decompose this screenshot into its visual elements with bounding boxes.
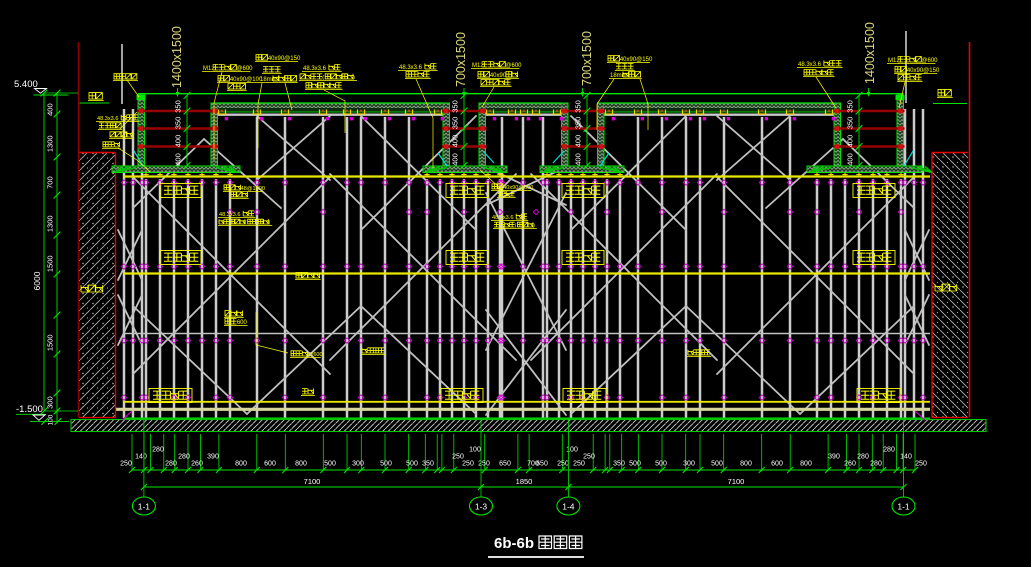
- svg-text:400: 400: [846, 135, 855, 148]
- svg-text:250: 250: [573, 461, 585, 468]
- svg-text:650: 650: [499, 461, 511, 468]
- svg-text:250: 250: [915, 461, 927, 468]
- svg-text:140: 140: [135, 454, 147, 461]
- svg-text:280: 280: [870, 461, 882, 468]
- svg-text:280: 280: [152, 447, 164, 454]
- svg-text:250: 250: [120, 461, 132, 468]
- svg-text:400: 400: [174, 135, 183, 148]
- svg-text:350: 350: [574, 117, 583, 130]
- svg-text:650: 650: [536, 461, 548, 468]
- svg-text:40x90: 40x90: [490, 73, 507, 79]
- svg-text:800: 800: [800, 461, 812, 468]
- svg-text:400: 400: [846, 153, 855, 166]
- svg-text:600: 600: [264, 461, 276, 468]
- svg-text:40x90@150: 40x90@150: [268, 56, 301, 62]
- svg-text:48@1500: 48@1500: [241, 186, 265, 192]
- svg-text:400: 400: [174, 153, 183, 166]
- svg-text:6000: 6000: [32, 271, 42, 290]
- svg-text:1300: 1300: [46, 135, 55, 152]
- svg-text:250: 250: [583, 454, 595, 461]
- svg-text:1400x1500: 1400x1500: [863, 22, 877, 84]
- svg-text:): ): [353, 75, 355, 81]
- svg-text:280: 280: [857, 454, 869, 461]
- svg-text:250: 250: [462, 461, 474, 468]
- svg-text:(: (: [245, 220, 247, 226]
- svg-text:280: 280: [178, 454, 190, 461]
- svg-text:18mm: 18mm: [260, 77, 277, 83]
- svg-text:600: 600: [771, 461, 783, 468]
- svg-text:48.3x3.6: 48.3x3.6: [399, 65, 423, 71]
- svg-text:300: 300: [46, 396, 55, 409]
- svg-text:350: 350: [174, 100, 183, 113]
- svg-text:700x1500: 700x1500: [580, 31, 594, 86]
- svg-text:@600: @600: [921, 58, 938, 64]
- svg-text:48.3x3.6: 48.3x3.6: [798, 62, 822, 68]
- svg-text:700: 700: [46, 176, 55, 189]
- svg-text:-1.500: -1.500: [16, 404, 43, 415]
- svg-text:140: 140: [900, 454, 912, 461]
- svg-text:48.3x3.6: 48.3x3.6: [219, 212, 240, 218]
- svg-text:@600: @600: [505, 63, 522, 69]
- svg-text:@600: @600: [308, 352, 323, 358]
- svg-text:1-3: 1-3: [475, 501, 488, 511]
- svg-text:400: 400: [574, 153, 583, 166]
- svg-text:350: 350: [174, 117, 183, 130]
- svg-text:300: 300: [352, 461, 364, 468]
- svg-text:7100: 7100: [304, 477, 321, 486]
- svg-text:350: 350: [613, 461, 625, 468]
- svg-text:1300: 1300: [46, 215, 55, 232]
- svg-text:@600: @600: [236, 66, 253, 72]
- svg-text:): ): [533, 223, 535, 229]
- svg-text:48.3x3.6: 48.3x3.6: [303, 66, 327, 72]
- svg-text:500: 500: [380, 461, 392, 468]
- svg-text:500: 500: [655, 461, 667, 468]
- svg-text:100: 100: [469, 447, 481, 454]
- svg-text:400: 400: [451, 135, 460, 148]
- svg-text:700x1500: 700x1500: [454, 32, 468, 87]
- svg-text:500: 500: [324, 461, 336, 468]
- svg-text:600: 600: [237, 320, 248, 326]
- svg-text:100: 100: [48, 414, 55, 425]
- svg-text:250: 250: [452, 454, 464, 461]
- svg-text:280: 280: [165, 461, 177, 468]
- svg-text:400: 400: [451, 153, 460, 166]
- svg-text:40x90@100: 40x90@100: [230, 77, 263, 83]
- svg-text:350: 350: [846, 100, 855, 113]
- svg-text:1850: 1850: [516, 477, 533, 486]
- svg-text:800: 800: [740, 461, 752, 468]
- svg-text:280: 280: [883, 447, 895, 454]
- svg-text:250: 250: [478, 461, 490, 468]
- svg-text:300: 300: [683, 461, 695, 468]
- svg-text:400: 400: [46, 103, 55, 116]
- svg-text:400: 400: [574, 135, 583, 148]
- svg-text:(: (: [515, 223, 517, 229]
- svg-text:1500: 1500: [46, 255, 55, 272]
- svg-text:350: 350: [422, 461, 434, 468]
- svg-text:7100: 7100: [728, 477, 745, 486]
- svg-text:48.3x3.6: 48.3x3.6: [492, 215, 513, 221]
- svg-text:260: 260: [191, 461, 203, 468]
- svg-text:(: (: [322, 75, 324, 81]
- svg-text:250: 250: [557, 461, 569, 468]
- svg-text:6b-6b: 6b-6b: [494, 535, 534, 552]
- svg-text:500: 500: [711, 461, 723, 468]
- svg-text:350: 350: [451, 117, 460, 130]
- svg-text:): ): [268, 220, 270, 226]
- svg-text:40x90@600: 40x90@600: [503, 185, 533, 191]
- svg-text:48.3x3.6: 48.3x3.6: [97, 116, 118, 122]
- svg-text:800: 800: [235, 461, 247, 468]
- svg-text:1400x1500: 1400x1500: [170, 26, 184, 88]
- svg-text:18mm: 18mm: [610, 73, 627, 79]
- svg-text:1-1: 1-1: [897, 501, 910, 511]
- svg-text:1500: 1500: [46, 334, 55, 351]
- svg-text:40x90@150: 40x90@150: [620, 57, 653, 63]
- svg-text:1-1: 1-1: [138, 501, 151, 511]
- svg-text:260: 260: [844, 461, 856, 468]
- svg-text:500: 500: [406, 461, 418, 468]
- svg-text:350: 350: [574, 100, 583, 113]
- svg-text:40x90@150: 40x90@150: [907, 68, 940, 74]
- svg-text:350: 350: [846, 117, 855, 130]
- svg-text:390: 390: [207, 454, 219, 461]
- svg-text:1-4: 1-4: [562, 501, 575, 511]
- svg-text:350: 350: [451, 100, 460, 113]
- svg-text:500: 500: [629, 461, 641, 468]
- svg-text:100: 100: [566, 447, 578, 454]
- svg-text:390: 390: [828, 454, 840, 461]
- svg-text:800: 800: [295, 461, 307, 468]
